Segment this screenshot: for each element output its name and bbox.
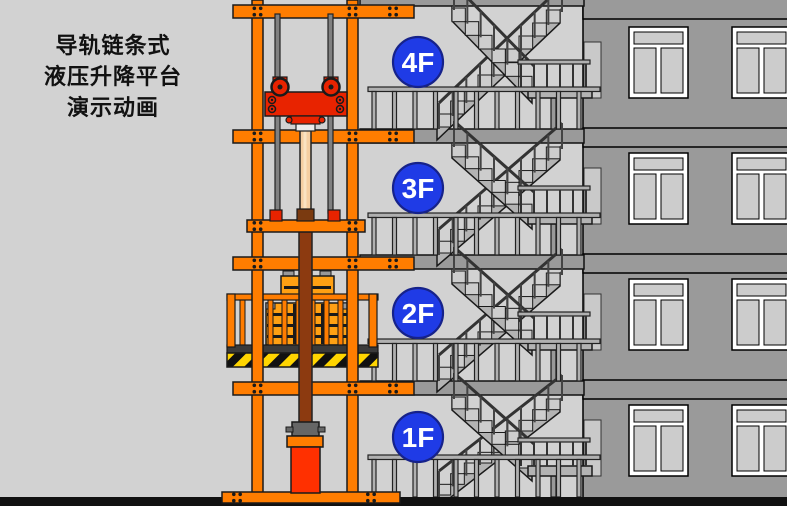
walkway-baluster <box>536 344 540 382</box>
landing-support-leg <box>551 224 556 255</box>
bolt <box>394 265 398 269</box>
walkway-baluster <box>413 92 417 130</box>
sprocket-hub <box>278 85 283 90</box>
walkway-handrail <box>368 213 600 218</box>
bolt <box>388 384 392 388</box>
bolt <box>388 259 392 263</box>
walkway-baluster <box>516 218 520 256</box>
landing-handrail <box>518 438 590 442</box>
walkway-baluster <box>577 460 581 498</box>
bolt <box>394 132 398 136</box>
window-pane-left <box>737 300 759 345</box>
window-pane-right <box>764 174 786 219</box>
walkway-baluster <box>495 92 499 130</box>
bolt <box>348 227 352 231</box>
cargo-stripe <box>310 286 331 289</box>
guide-rail-right <box>347 0 358 493</box>
bolt <box>366 493 370 497</box>
carriage-bolt-dot <box>339 99 341 101</box>
walkway-baluster <box>413 460 417 498</box>
window-transom-pane <box>737 410 786 422</box>
yoke-beam <box>247 220 365 232</box>
window-pane-right <box>764 426 786 471</box>
bolt <box>348 7 352 11</box>
stair-flight-down-step <box>465 22 478 36</box>
carriage-bolt-dot <box>339 108 341 110</box>
walkway-baluster <box>557 92 561 130</box>
window-pane-left <box>634 426 656 471</box>
bolt <box>253 132 257 136</box>
bolt <box>259 227 263 231</box>
bolt <box>394 138 398 142</box>
stair-flight-down-step <box>505 63 518 77</box>
window-pane-left <box>737 426 759 471</box>
walkway-baluster <box>413 218 417 256</box>
bolt <box>348 132 352 136</box>
walkway-baluster <box>454 92 458 130</box>
window-transom-pane <box>737 284 786 296</box>
walkway-baluster <box>516 92 520 130</box>
walkway-baluster <box>516 344 520 382</box>
bolt <box>259 259 263 263</box>
bolt <box>354 7 358 11</box>
bolt <box>259 265 263 269</box>
facade-slab-band <box>583 380 787 399</box>
landing-support-leg <box>551 98 556 129</box>
landing-support-leg <box>551 350 556 381</box>
bolt <box>348 13 352 17</box>
bolt <box>238 499 242 503</box>
title-line-2: 液压升降平台 <box>14 61 212 92</box>
bolt <box>238 493 242 497</box>
piston-highlight <box>304 131 307 213</box>
bolt <box>354 390 358 394</box>
window-pane-right <box>661 174 683 219</box>
bolt <box>253 7 257 11</box>
bolt <box>259 221 263 225</box>
walkway-baluster <box>577 218 581 256</box>
landing-handrail <box>518 60 590 64</box>
platform-baluster <box>282 300 287 347</box>
walkway-handrail <box>368 339 600 344</box>
landing-support-leg <box>551 476 556 497</box>
walkway-baluster <box>393 344 397 382</box>
sprocket-hub <box>329 85 334 90</box>
landing-handrail <box>518 186 590 190</box>
platform-baluster <box>324 300 329 347</box>
walkway-baluster <box>393 218 397 256</box>
floor-badge-label: 3F <box>402 173 435 204</box>
platform-baluster <box>268 300 273 347</box>
walkway-baluster <box>536 460 540 498</box>
bolt <box>259 138 263 142</box>
walkway-baluster <box>557 344 561 382</box>
building-facade <box>583 0 787 506</box>
rod-clamp <box>292 422 319 436</box>
title-line-1: 导轨链条式 <box>14 30 212 61</box>
walkway-baluster <box>536 92 540 130</box>
bolt <box>372 499 376 503</box>
bolt <box>259 7 263 11</box>
walkway-baluster <box>495 460 499 498</box>
facade-top-band <box>583 0 787 19</box>
window-pane-left <box>737 48 759 93</box>
walkway-baluster <box>475 460 479 498</box>
walkway-baluster <box>454 344 458 382</box>
bolt <box>348 138 352 142</box>
floor-badge-label: 1F <box>402 422 435 453</box>
bolt <box>253 221 257 225</box>
platform-baluster <box>240 300 245 347</box>
bolt <box>253 384 257 388</box>
chain-anchor <box>328 210 340 221</box>
bolt <box>348 221 352 225</box>
guide-rail-left <box>252 0 263 493</box>
bolt <box>394 13 398 17</box>
window-pane-right <box>764 48 786 93</box>
bolt <box>354 384 358 388</box>
window-transom-pane <box>737 158 786 170</box>
cylinder-rod <box>299 220 312 424</box>
bolt <box>388 7 392 11</box>
bolt <box>253 138 257 142</box>
bolt <box>259 13 263 17</box>
platform-end-post <box>369 294 377 347</box>
walkway-baluster <box>495 344 499 382</box>
walkway-baluster <box>372 92 376 130</box>
window-transom-pane <box>634 32 683 44</box>
floor-badge-label: 4F <box>402 47 435 78</box>
bolt <box>348 259 352 263</box>
clamp-pin <box>286 427 293 432</box>
stair-flight-down-step <box>479 35 492 49</box>
window-transom-pane <box>634 284 683 296</box>
window-pane-right <box>661 426 683 471</box>
bracket-pin <box>286 117 292 123</box>
walkway-baluster <box>475 92 479 130</box>
bolt <box>354 138 358 142</box>
window-pane-left <box>634 174 656 219</box>
bolt <box>259 132 263 136</box>
walkway-baluster <box>577 92 581 130</box>
bolt <box>394 259 398 263</box>
cylinder-flange <box>287 436 323 447</box>
walkway-baluster <box>434 344 438 382</box>
walkway-baluster <box>372 218 376 256</box>
window-transom-pane <box>634 410 683 422</box>
window-pane-right <box>661 48 683 93</box>
walkway-baluster <box>434 92 438 130</box>
demo-animation-stage: 4F3F2F1F 导轨链条式 液压升降平台 演示动画 <box>0 0 787 506</box>
window-pane-right <box>661 300 683 345</box>
bolt <box>232 499 236 503</box>
piston-head-cap <box>296 124 315 131</box>
bolt <box>394 7 398 11</box>
title-line-3: 演示动画 <box>14 92 212 123</box>
bolt <box>372 493 376 497</box>
walkway-baluster <box>454 218 458 256</box>
bolt <box>354 265 358 269</box>
bolt <box>366 499 370 503</box>
bolt <box>259 390 263 394</box>
bolt <box>348 390 352 394</box>
bracket-pin <box>319 117 325 123</box>
bolt <box>354 13 358 17</box>
window-pane-left <box>634 48 656 93</box>
carriage-bolt-dot <box>271 108 273 110</box>
walkway-baluster <box>495 218 499 256</box>
walkway-baluster <box>557 460 561 498</box>
bolt <box>348 384 352 388</box>
bolt <box>253 13 257 17</box>
carriage-bracket <box>291 116 320 124</box>
landing-handrail <box>518 312 590 316</box>
walkway-handrail <box>368 87 600 92</box>
window-pane-left <box>634 300 656 345</box>
walkway-baluster <box>475 344 479 382</box>
bolt <box>348 265 352 269</box>
walkway-baluster <box>434 460 438 498</box>
platform-baluster <box>338 300 343 347</box>
bolt <box>388 390 392 394</box>
facade-slab-band <box>583 128 787 147</box>
bolt <box>253 265 257 269</box>
bolt <box>232 493 236 497</box>
carriage-bolt-dot <box>271 99 273 101</box>
walkway-baluster <box>557 218 561 256</box>
walkway-baluster <box>393 92 397 130</box>
walkway-baluster <box>536 218 540 256</box>
window-pane-right <box>764 300 786 345</box>
walkway-baluster <box>516 460 520 498</box>
stair-flight-down-step <box>492 49 505 63</box>
bolt <box>388 132 392 136</box>
rod-cap <box>297 209 314 221</box>
walkway-baluster <box>454 460 458 498</box>
platform-end-post <box>227 294 235 347</box>
clamp-pin <box>318 427 325 432</box>
walkway-baluster <box>577 344 581 382</box>
bolt <box>259 384 263 388</box>
walkway-baluster <box>434 218 438 256</box>
chain-anchor <box>270 210 282 221</box>
bolt <box>354 259 358 263</box>
diagram-title: 导轨链条式 液压升降平台 演示动画 <box>14 30 212 123</box>
bolt <box>354 132 358 136</box>
bolt <box>354 221 358 225</box>
floor-badge-label: 2F <box>402 298 435 329</box>
window-pane-left <box>737 174 759 219</box>
stair-flight-down-step <box>452 8 465 22</box>
bolt <box>253 259 257 263</box>
walkway-baluster <box>413 344 417 382</box>
facade-slab-band <box>583 254 787 273</box>
bolt <box>253 227 257 231</box>
bolt <box>388 265 392 269</box>
bolt <box>253 390 257 394</box>
bolt <box>388 138 392 142</box>
window-transom-pane <box>634 158 683 170</box>
window-transom-pane <box>737 32 786 44</box>
bolt <box>394 384 398 388</box>
bolt <box>388 13 392 17</box>
hydraulic-cylinder <box>291 447 320 493</box>
walkway-baluster <box>475 218 479 256</box>
bolt <box>354 227 358 231</box>
bolt <box>394 390 398 394</box>
